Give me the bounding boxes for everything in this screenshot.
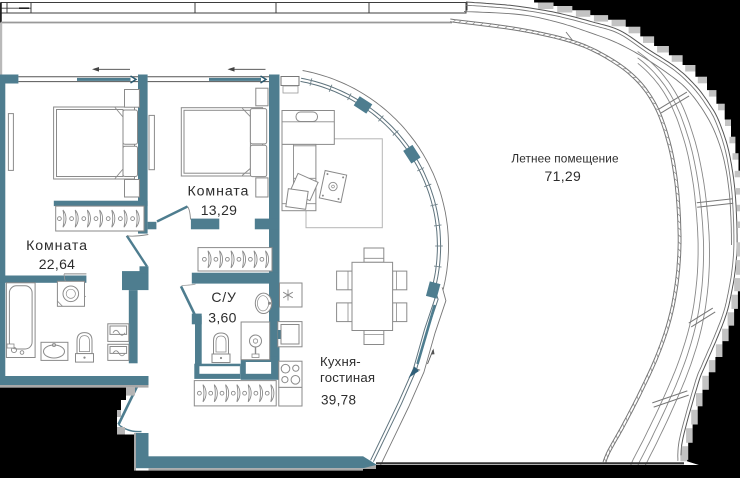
svg-text:Летнее помещение: Летнее помещение: [511, 152, 619, 166]
svg-text:Кухня-: Кухня-: [320, 354, 361, 369]
svg-text:71,29: 71,29: [545, 168, 582, 184]
svg-text:гостиная: гостиная: [320, 370, 375, 385]
svg-text:39,78: 39,78: [321, 393, 356, 408]
svg-text:Комната: Комната: [187, 183, 249, 199]
svg-text:13,29: 13,29: [201, 202, 238, 218]
svg-text:22,64: 22,64: [39, 256, 76, 272]
svg-text:3,60: 3,60: [208, 310, 236, 326]
svg-text:С/У: С/У: [211, 289, 236, 305]
svg-text:Комната: Комната: [26, 238, 88, 254]
